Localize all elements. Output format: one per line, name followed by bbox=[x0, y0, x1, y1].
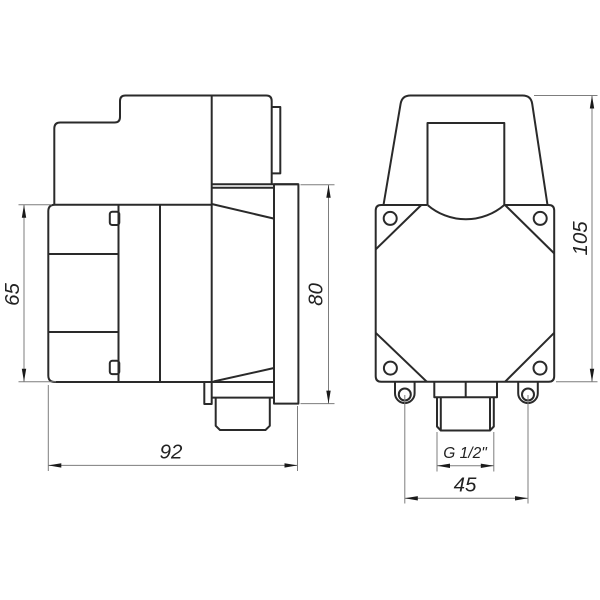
svg-text:80: 80 bbox=[305, 283, 328, 306]
svg-text:G 1/2": G 1/2" bbox=[443, 445, 488, 462]
svg-text:45: 45 bbox=[454, 474, 477, 497]
svg-text:105: 105 bbox=[569, 221, 592, 256]
svg-text:65: 65 bbox=[1, 283, 24, 306]
svg-text:92: 92 bbox=[160, 441, 183, 464]
